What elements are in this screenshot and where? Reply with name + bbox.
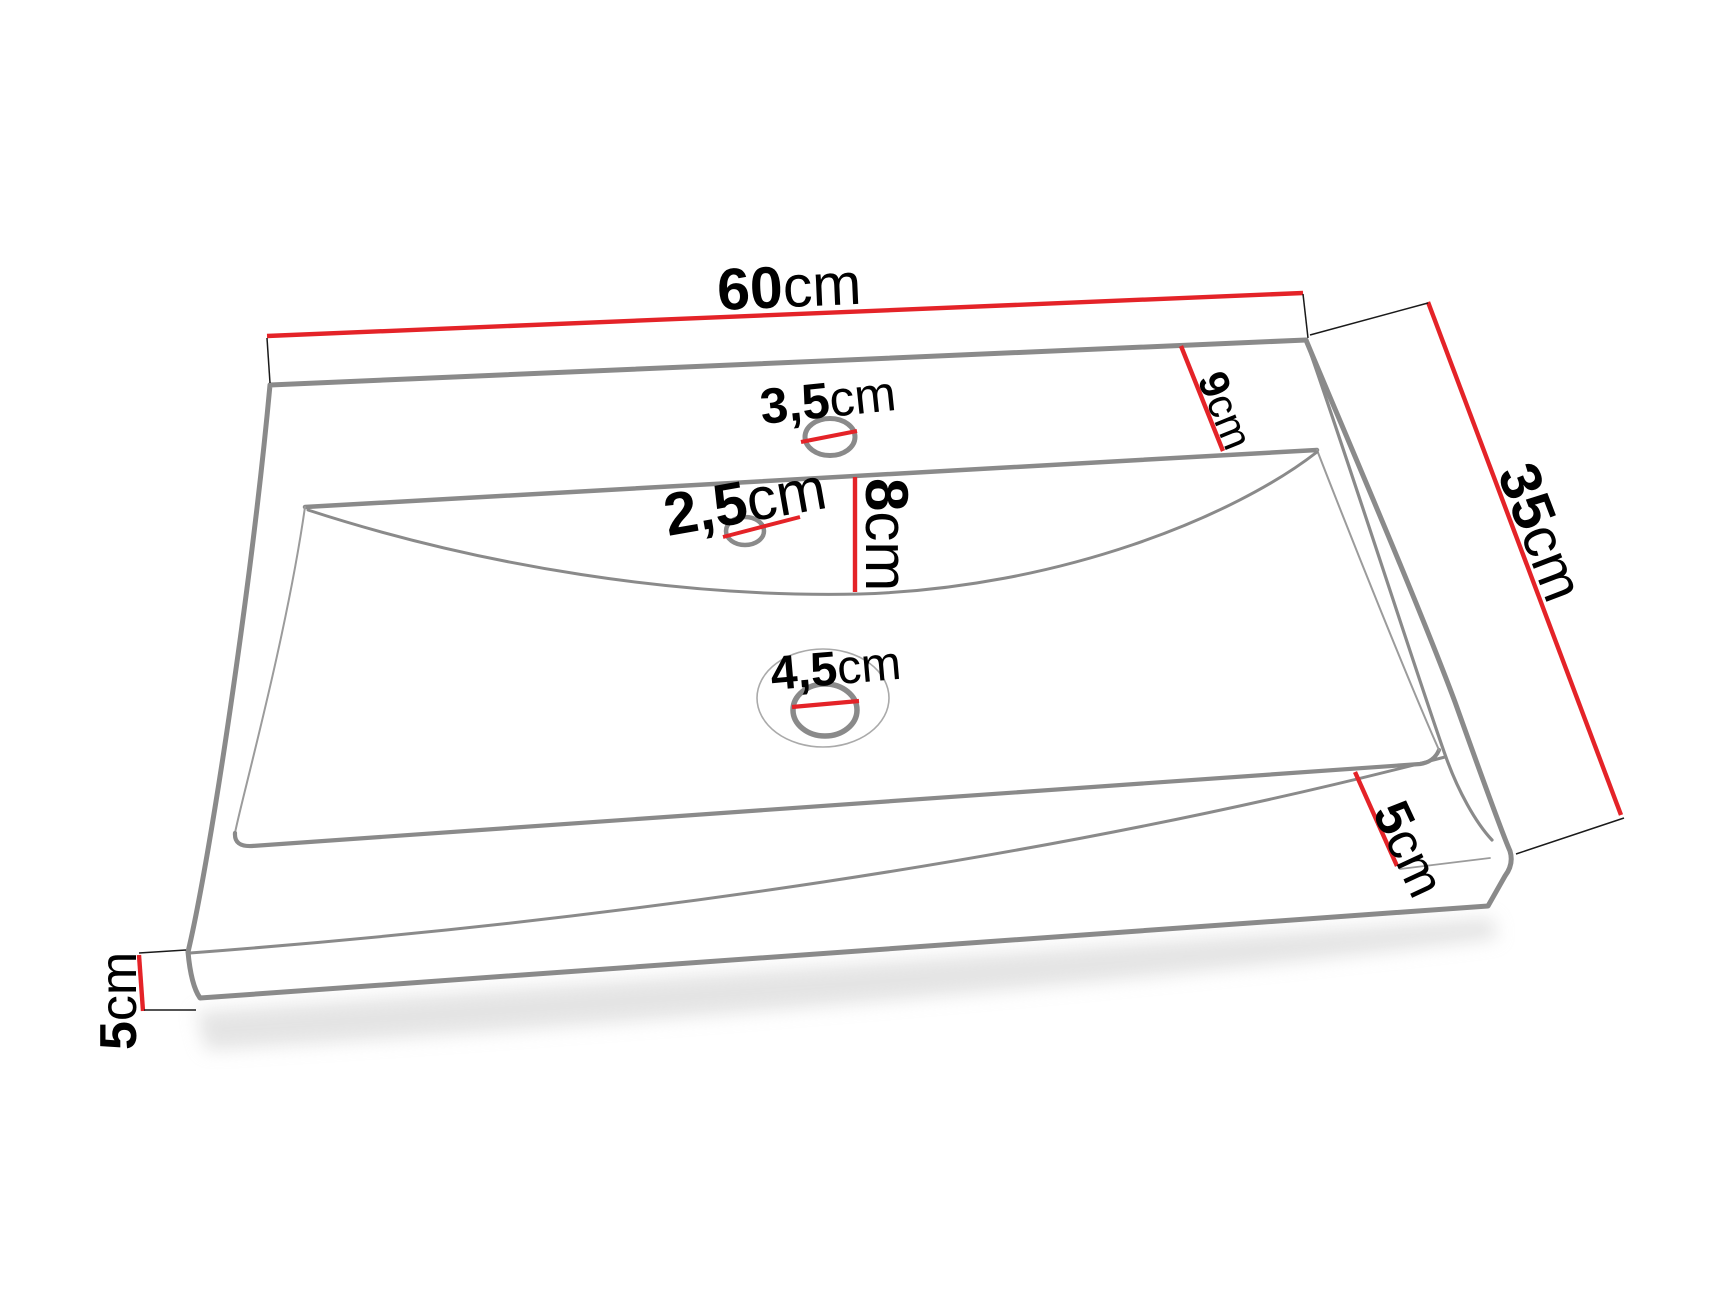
depth-dimension-tick-top	[1310, 303, 1428, 335]
left-edge-dimension-label: 5cm	[90, 952, 148, 1050]
drain-hole-label: 4,5cm	[768, 637, 903, 701]
width-dimension-label: 60cm	[716, 251, 863, 323]
diagram-canvas: 60cm 9cm 3,5cm 2,5cm 8cm 4,5cm 35cm 5cm …	[0, 0, 1726, 1295]
width-dimension-tick-right	[1303, 294, 1308, 338]
width-dimension-tick-left	[267, 338, 270, 383]
washbasin-dimension-drawing: 60cm 9cm 3,5cm 2,5cm 8cm 4,5cm 35cm 5cm …	[0, 0, 1726, 1295]
basin-depth-dimension-label: 8cm	[853, 478, 920, 591]
depth-dimension-tick-bottom	[1516, 818, 1624, 854]
depth-dimension-label: 35cm	[1485, 454, 1597, 610]
